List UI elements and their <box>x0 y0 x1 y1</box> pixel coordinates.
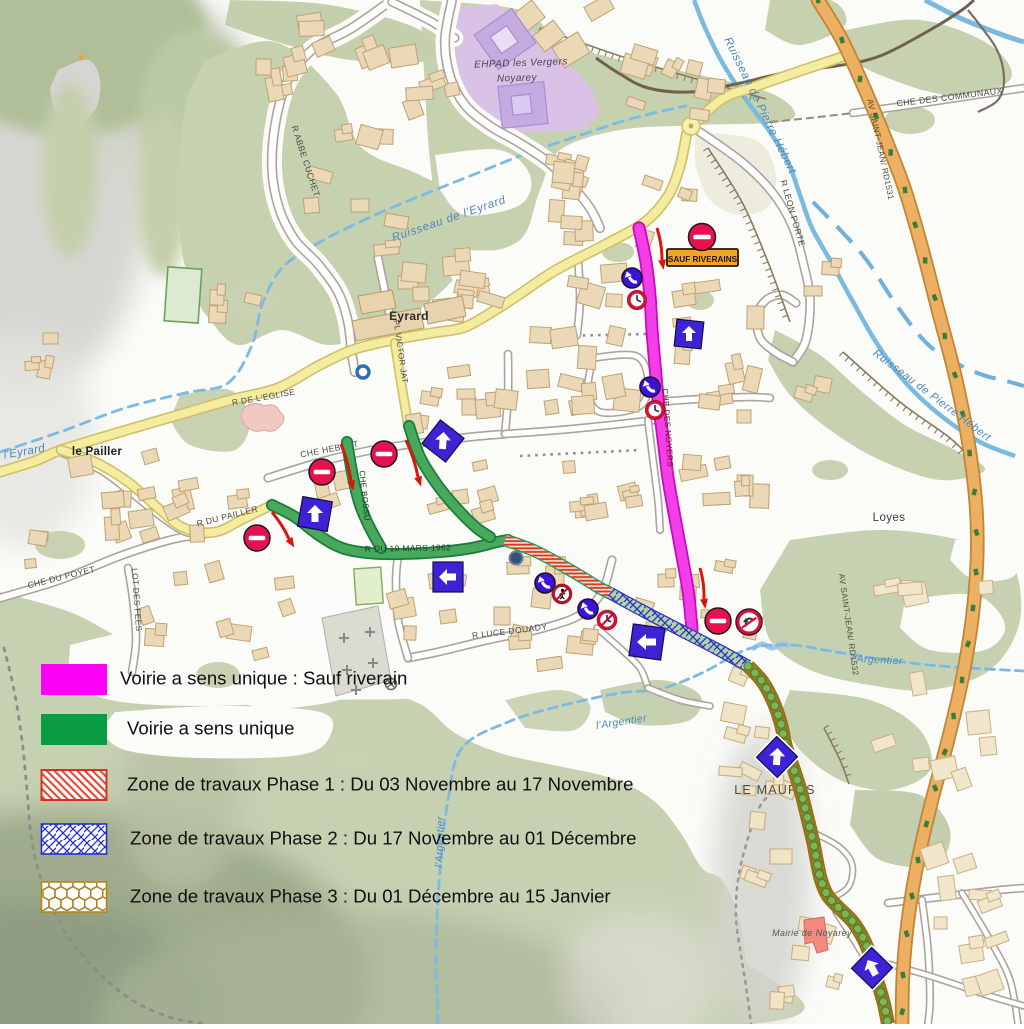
svg-text:SAUF RIVERAINS: SAUF RIVERAINS <box>668 255 738 264</box>
svg-text:Voirie a sens unique : Sauf ri: Voirie a sens unique : Sauf riverain <box>120 668 407 689</box>
svg-text:Zone de travaux Phase 3 : Du 0: Zone de travaux Phase 3 : Du 01 Décembre… <box>130 886 611 907</box>
svg-text:Zone de travaux Phase 1 : Du 0: Zone de travaux Phase 1 : Du 03 Novembre… <box>127 774 633 795</box>
svg-text:Mairie de Noyarey: Mairie de Noyarey <box>772 928 852 938</box>
svg-text:R DU 19 MARS 1962: R DU 19 MARS 1962 <box>365 542 452 554</box>
svg-text:Loyes: Loyes <box>873 512 906 524</box>
svg-text:Voirie a sens unique: Voirie a sens unique <box>127 718 294 739</box>
svg-text:Zone de travaux Phase 2 : Du 1: Zone de travaux Phase 2 : Du 17 Novembre… <box>130 828 636 849</box>
svg-text:Noyarey: Noyarey <box>497 72 538 84</box>
svg-text:Eyrard: Eyrard <box>389 309 429 323</box>
svg-text:le Pailler: le Pailler <box>72 446 123 458</box>
